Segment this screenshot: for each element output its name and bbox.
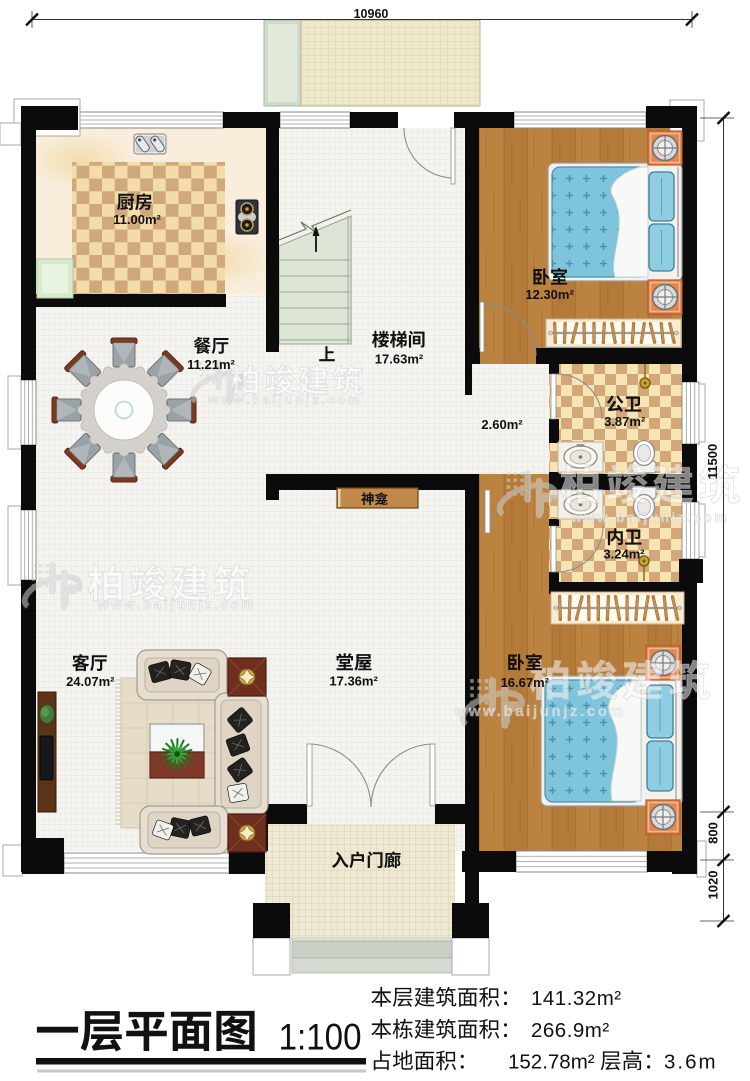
svg-text:3.6m: 3.6m (664, 1051, 718, 1074)
svg-text:11.00m²: 11.00m² (113, 212, 161, 227)
svg-text:2.60m²: 2.60m² (481, 417, 523, 432)
svg-text:1:100: 1:100 (279, 1017, 362, 1058)
svg-text:17.36m²: 17.36m² (329, 674, 378, 689)
svg-text:www.baijunjz.com: www.baijunjz.com (570, 510, 729, 525)
svg-text:266.9m²: 266.9m² (531, 1019, 610, 1042)
svg-text:12.30m²: 12.30m² (525, 287, 574, 302)
svg-text:141.32m²: 141.32m² (531, 987, 622, 1010)
svg-text:152.78m²: 152.78m² (508, 1051, 595, 1074)
svg-text:3.87m²: 3.87m² (604, 414, 646, 429)
svg-text:www.baijunjz.com: www.baijunjz.com (97, 597, 256, 612)
svg-text:11.21m²: 11.21m² (187, 357, 235, 372)
svg-text:800: 800 (706, 822, 721, 844)
svg-text:www.baijunjz.com: www.baijunjz.com (207, 392, 362, 407)
svg-text:3.24m²: 3.24m² (603, 547, 645, 562)
svg-text:24.07m²: 24.07m² (66, 674, 115, 689)
svg-text:11500: 11500 (705, 444, 720, 479)
svg-text:10960: 10960 (354, 7, 389, 21)
svg-text:17.63m²: 17.63m² (375, 352, 424, 367)
svg-text:1020: 1020 (706, 871, 721, 900)
svg-text:16.67m²: 16.67m² (501, 675, 550, 690)
svg-text:www.baijunjz.com: www.baijunjz.com (453, 703, 625, 720)
